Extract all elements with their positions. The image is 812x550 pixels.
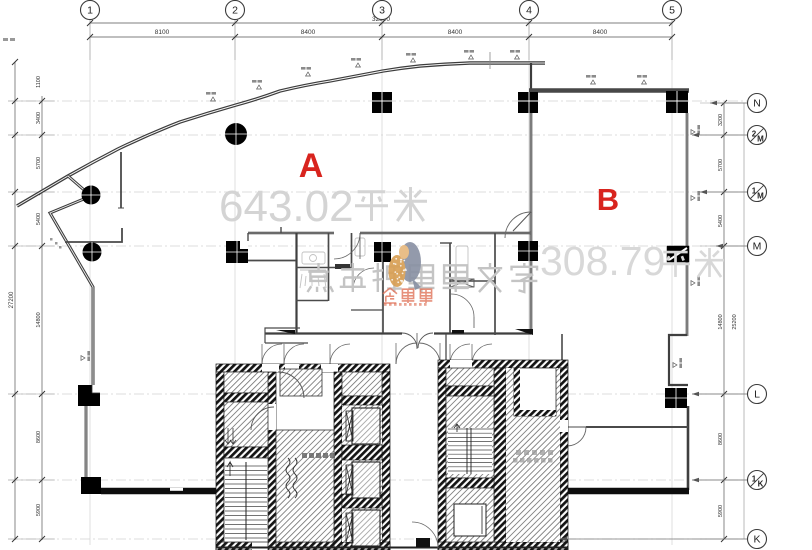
svg-text:K: K [758, 480, 764, 489]
svg-text:8600: 8600 [718, 433, 724, 445]
svg-text:5700: 5700 [36, 157, 42, 169]
svg-text:5: 5 [669, 5, 675, 17]
svg-text:3: 3 [379, 5, 385, 17]
svg-text:27200: 27200 [9, 291, 15, 308]
svg-text:N: N [753, 98, 761, 110]
svg-text:5900: 5900 [36, 504, 42, 516]
svg-text:A: A [299, 147, 324, 185]
svg-text:1100: 1100 [36, 76, 42, 88]
svg-text:5400: 5400 [718, 215, 724, 227]
svg-text:643.02: 643.02 [219, 182, 354, 231]
svg-text:2: 2 [232, 5, 238, 17]
svg-text:8400: 8400 [448, 29, 463, 36]
svg-text:5900: 5900 [718, 505, 724, 517]
svg-text:1: 1 [752, 187, 757, 196]
svg-text:8400: 8400 [593, 29, 608, 36]
svg-text:8400: 8400 [301, 29, 316, 36]
svg-text:M: M [757, 135, 764, 144]
svg-text:1: 1 [87, 5, 93, 17]
svg-text:4: 4 [526, 5, 532, 17]
svg-text:5700: 5700 [718, 159, 724, 171]
svg-text:3400: 3400 [36, 112, 42, 124]
svg-text:M: M [757, 192, 764, 201]
svg-text:3200: 3200 [718, 114, 724, 126]
svg-text:308.79: 308.79 [540, 238, 665, 284]
svg-text:8100: 8100 [155, 29, 170, 36]
svg-text:1: 1 [752, 475, 757, 484]
svg-text:K: K [753, 534, 760, 546]
svg-text:5400: 5400 [36, 213, 42, 225]
svg-text:M: M [753, 241, 762, 253]
svg-text:14800: 14800 [36, 312, 42, 327]
svg-text:25200: 25200 [732, 314, 738, 329]
svg-text:L: L [754, 389, 760, 401]
svg-text:8600: 8600 [36, 431, 42, 443]
svg-text:2: 2 [752, 130, 757, 139]
svg-text:14800: 14800 [718, 314, 724, 329]
svg-text:B: B [597, 182, 619, 217]
